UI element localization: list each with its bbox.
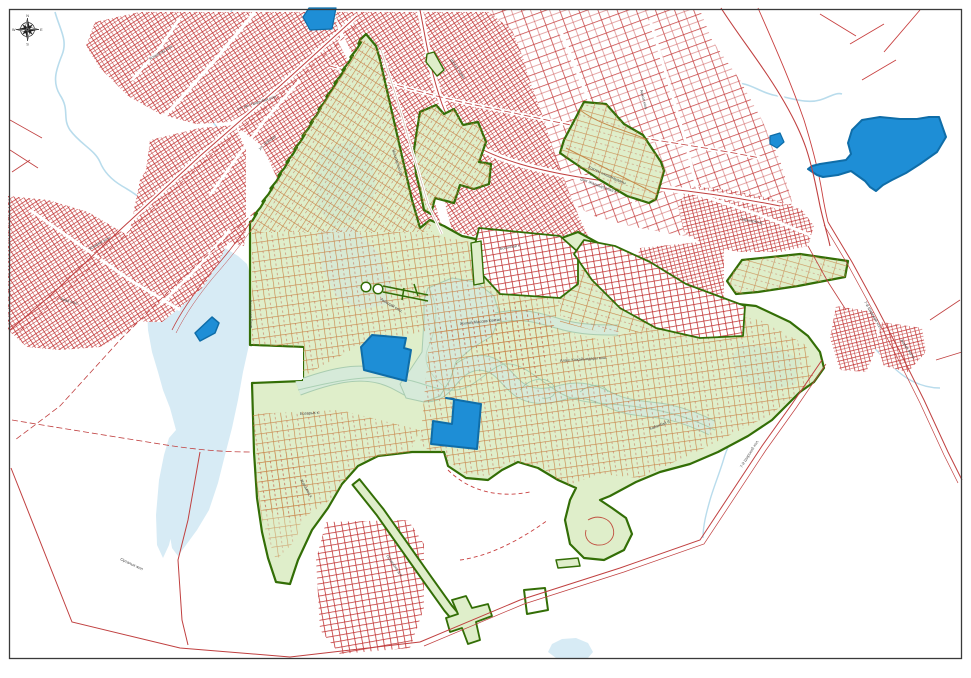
svg-text:E: E bbox=[40, 28, 43, 32]
svg-text:Волжская Возв.: Волжская Возв. bbox=[248, 300, 254, 329]
svg-text:N: N bbox=[26, 14, 29, 18]
svg-text:W: W bbox=[12, 28, 16, 32]
